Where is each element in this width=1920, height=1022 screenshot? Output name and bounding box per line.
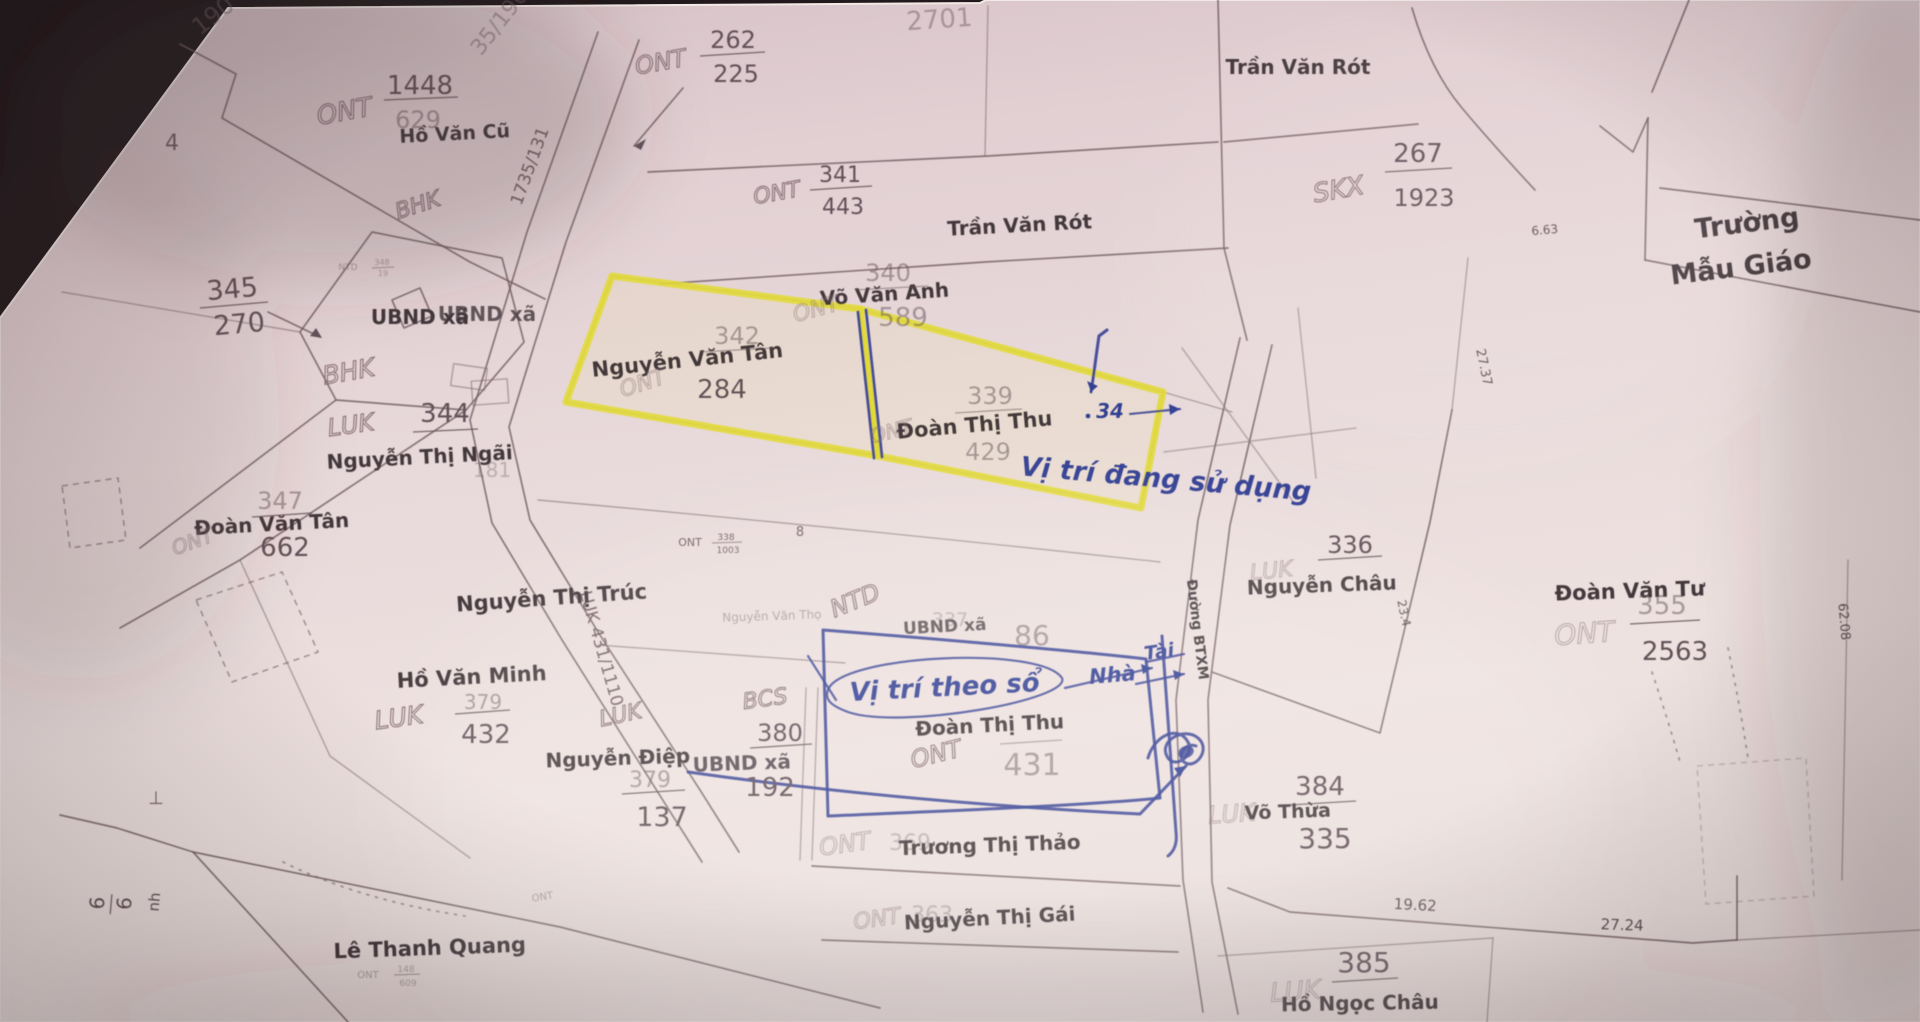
parcel-area: 443 [822,195,864,220]
perpendicular-mark: ⊥ [148,788,164,809]
code-ont: ONT [1553,615,1617,652]
map-canvas: ONT 1448 629 Hồ Văn Cũ ONT 262 225 ONT 3… [0,0,1920,1022]
parcel-number: 341 [819,163,861,188]
cadastral-map-photo: ONT 1448 629 Hồ Văn Cũ ONT 262 225 ONT 3… [0,0,1920,1022]
parcel-area: 662 [260,533,310,563]
parcel-number: 262 [710,26,756,54]
parcel-area: 429 [965,438,1011,466]
parcel-number: 355 [1637,591,1687,621]
fragment-2701: 2701 [905,3,973,38]
edge-number: 6 [85,896,110,911]
parcel-number: 340 [865,259,911,287]
label-ubnd-xa: UBND xã [438,302,536,326]
parcel-number: 342 [714,322,760,350]
handwriting-34: 34 [1096,399,1124,423]
parcel-area: 225 [713,60,759,88]
parcel-number: 344 [420,399,470,429]
edge-text: nh [145,892,165,913]
edge-number: 6 [112,896,137,911]
pen-dot [1086,414,1091,419]
parcel-area: 284 [697,375,747,405]
parcel-number: 339 [967,382,1013,410]
measurement-27-24: 27.24 [1600,915,1644,934]
parcel-area: 2563 [1642,637,1708,667]
parcel-area: 589 [878,303,928,333]
highlight [1150,50,1750,450]
